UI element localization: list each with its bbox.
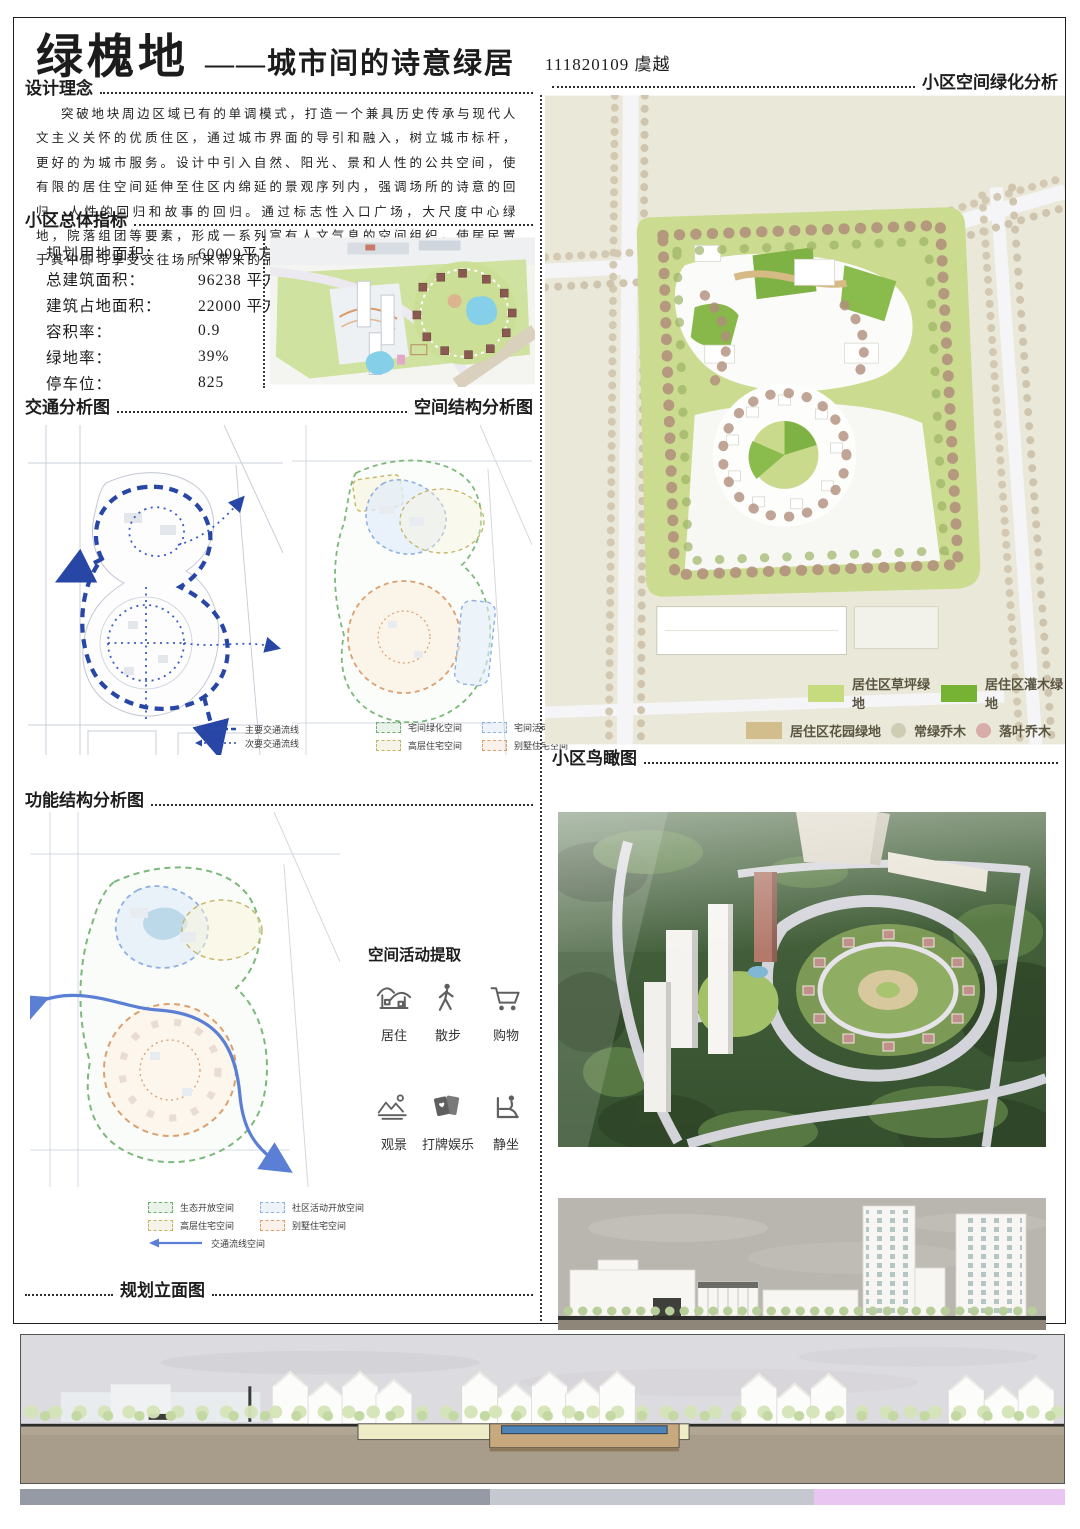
activity-item: 观景 [368, 1090, 420, 1153]
structure-legend: 宅间绿化空间 宅间活动空间 高层住宅空间 别墅住宅空间 [376, 720, 568, 752]
legend-swatch [808, 685, 844, 702]
section-birds-eye: 小区鸟瞰图 [552, 744, 1058, 769]
traffic-legend-item: 次要交通流线 [192, 736, 299, 750]
legend-swatch [746, 722, 782, 739]
cart-icon [488, 981, 524, 1017]
section-planning-elevation: 规划立面图 [25, 1276, 533, 1301]
greening-legend-item: 落叶乔木 [976, 721, 1051, 740]
birds-eye-illustration [558, 812, 1046, 1147]
footer-color-segment [814, 1489, 1065, 1505]
functional-legend-item: 社区活动开放空间 [260, 1200, 364, 1214]
walking-icon [430, 981, 466, 1017]
indicator-row: 规划用地面积：60000平方米 [46, 240, 296, 266]
greening-legend-item: 居住区草坪绿地 [808, 674, 931, 712]
legend-swatch [148, 1202, 173, 1213]
legend-swatch [482, 740, 507, 751]
right-elevation-illustration [558, 1198, 1046, 1330]
site-axon-illustration [270, 235, 535, 387]
activity-item: 静坐 [476, 1090, 536, 1153]
activity-extraction-panel: 空间活动提取 居住 散步 购物 [368, 943, 538, 1153]
indicator-row: 建筑占地面积：22000 平方米 [46, 292, 296, 318]
activity-panel-title: 空间活动提取 [368, 943, 538, 965]
footer-color-bar [20, 1489, 1065, 1505]
legend-swatch [260, 1202, 285, 1213]
greening-legend-item: 常绿乔木 [891, 721, 966, 740]
dotted-leader [552, 86, 915, 88]
functional-diagram-illustration [30, 812, 340, 1187]
dotted-leader [151, 804, 533, 806]
dotted-leader [25, 1294, 113, 1296]
section-title: 规划立面图 [120, 1276, 205, 1301]
bottom-elevation-strip [20, 1334, 1065, 1484]
sitting-icon [488, 1090, 524, 1126]
section-title-traffic: 交通分析图 [25, 393, 110, 418]
activity-item: 居住 [368, 981, 420, 1044]
functional-legend-item: 交通流线空间 [148, 1236, 364, 1250]
arrow-dashed-icon [192, 724, 238, 734]
legend-swatch [941, 685, 977, 702]
landscape-icon [376, 1090, 412, 1126]
greening-legend: 居住区草坪绿地 居住区灌木绿地 居住区花园绿地 常绿乔木 落叶乔木 [746, 674, 1064, 749]
site-axon-thumbnail [270, 235, 535, 387]
section-title: 小区总体指标 [25, 206, 127, 231]
indicator-row: 总建筑面积：96238 平方米 [46, 266, 296, 292]
legend-swatch [482, 722, 507, 733]
section-design-concept: 设计理念 [25, 74, 533, 99]
greening-legend-item: 居住区灌木绿地 [941, 674, 1064, 712]
legend-label: 主要交通流线 [245, 723, 299, 736]
poster-page: 绿槐地 ——城市间的诗意绿居 111820109 虞越 设计理念 小区空间绿化分… [0, 0, 1080, 1529]
footer-color-segment [490, 1489, 814, 1505]
functional-legend-item: 别墅住宅空间 [260, 1218, 364, 1232]
structure-diagram-illustration [292, 425, 532, 755]
legend-swatch [148, 1220, 173, 1231]
structure-legend-item: 宅间绿化空间 [376, 720, 462, 734]
right-elevation-drawing [558, 1198, 1046, 1330]
greening-map-illustration [545, 95, 1065, 745]
spatial-structure-diagram [292, 425, 532, 755]
functional-legend-item: 高层住宅空间 [148, 1218, 234, 1232]
indicator-row: 容积率：0.9 [46, 318, 296, 344]
section-title: 小区鸟瞰图 [552, 744, 637, 769]
section-overall-indicators: 小区总体指标 [25, 206, 533, 231]
dotted-leader [212, 1294, 533, 1296]
indicator-image-divider [263, 236, 265, 388]
footer-color-segment [20, 1489, 490, 1505]
traffic-legend-item: 主要交通流线 [192, 722, 299, 736]
dotted-leader [100, 92, 533, 94]
functional-structure-diagram [30, 812, 340, 1187]
section-title: 设计理念 [25, 74, 93, 99]
bottom-elevation-illustration [21, 1335, 1064, 1483]
section-title: 功能结构分析图 [25, 786, 144, 811]
section-functional-structure: 功能结构分析图 [25, 786, 533, 811]
column-divider [540, 95, 542, 1321]
activity-grid: 居住 散步 购物 观景 [368, 981, 538, 1153]
house-icon [376, 981, 412, 1017]
activity-item: 购物 [476, 981, 536, 1044]
activity-item: 散步 [422, 981, 474, 1044]
dotted-leader [117, 411, 407, 413]
functional-legend-item: 生态开放空间 [148, 1200, 234, 1214]
birds-eye-view [558, 812, 1046, 1147]
structure-legend-item: 高层住宅空间 [376, 738, 462, 752]
activity-item: 打牌娱乐 [422, 1090, 474, 1153]
section-traffic-structure: 交通分析图 空间结构分析图 [25, 393, 533, 418]
legend-swatch [376, 722, 401, 733]
indicator-row: 绿地率：39% [46, 344, 296, 370]
section-greening-analysis: 小区空间绿化分析 [552, 68, 1058, 93]
greening-analysis-map [545, 95, 1065, 745]
arrow-line-icon [148, 1238, 204, 1248]
traffic-legend: 主要交通流线 次要交通流线 [192, 722, 299, 750]
cards-icon [430, 1090, 466, 1126]
indicator-list: 规划用地面积：60000平方米 总建筑面积：96238 平方米 建筑占地面积：2… [46, 240, 296, 396]
legend-swatch [376, 740, 401, 751]
functional-legend: 生态开放空间 社区活动开放空间 高层住宅空间 别墅住宅空间 交通流线空间 [148, 1200, 364, 1250]
tree-symbol [891, 723, 906, 738]
traffic-diagram-illustration [28, 425, 283, 755]
traffic-analysis-diagram [28, 425, 283, 755]
dotted-leader [644, 762, 1058, 764]
greening-legend-item: 居住区花园绿地 [746, 721, 881, 740]
arrow-dotted-icon [192, 738, 238, 748]
dotted-leader [134, 224, 533, 226]
legend-label: 次要交通流线 [245, 737, 299, 750]
tree-symbol [976, 723, 991, 738]
legend-swatch [260, 1220, 285, 1231]
section-title: 小区空间绿化分析 [922, 68, 1058, 93]
section-title-structure: 空间结构分析图 [414, 393, 533, 418]
